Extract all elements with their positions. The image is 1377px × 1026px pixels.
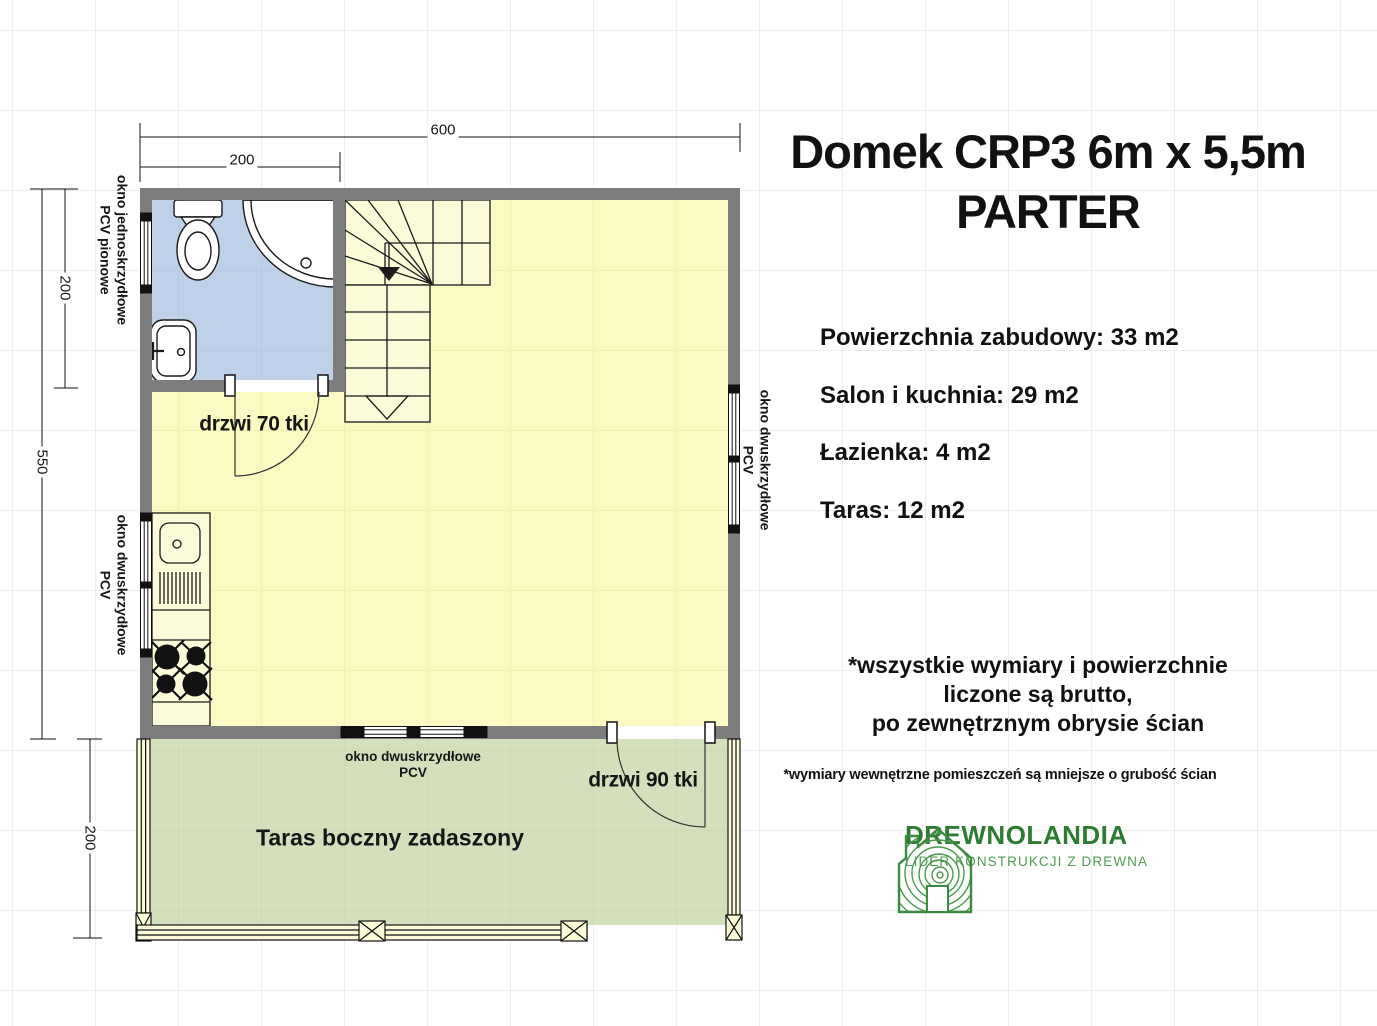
page-title: Domek CRP3 6m x 5,5m PARTER — [756, 122, 1340, 242]
dimension-height-bathroom: 200 — [58, 272, 73, 303]
window-left-kitchen-label: okno dwuskrzydłowe PCV — [97, 515, 130, 656]
stat-terrace: Taras: 12 m2 — [820, 497, 965, 525]
page-title-line1: Domek CRP3 6m x 5,5m — [756, 122, 1340, 182]
page: 600 200 550 200 200 okno jednoskrzydłowe… — [0, 0, 1377, 1026]
door-bathroom-label: drzwi 70 tki — [199, 413, 309, 438]
door-terrace-label: drzwi 90 tki — [588, 769, 698, 794]
window-right — [729, 385, 740, 533]
page-title-line2: PARTER — [756, 182, 1340, 242]
window-left-bathroom — [141, 213, 152, 293]
note-internal-dimensions: *wymiary wewnętrzne pomieszczeń są mniej… — [778, 767, 1222, 783]
drewnolandia-logo: DREWNOLANDIA LIDER KONSTRUKCJI Z DREWNA — [893, 820, 1148, 869]
drewnolandia-house-icon — [893, 820, 977, 914]
stat-living-kitchen: Salon i kuchnia: 29 m2 — [820, 382, 1079, 410]
window-left-bathroom-label: okno jednoskrzydłowe PCV pionowe — [97, 175, 130, 325]
window-bottom — [341, 727, 487, 738]
window-left-kitchen — [141, 513, 152, 657]
dimension-width-bathroom: 200 — [226, 153, 257, 168]
dimension-width-total: 600 — [427, 123, 458, 138]
window-right-label: okno dwuskrzydłowe PCV — [740, 390, 773, 531]
dimension-height-total: 550 — [35, 446, 50, 477]
terrace-label: Taras boczny zadaszony — [256, 824, 524, 851]
window-bottom-label: okno dwuskrzydłowe PCV — [345, 749, 481, 781]
stat-bathroom: Łazienka: 4 m2 — [820, 439, 991, 467]
dimension-height-terrace: 200 — [83, 822, 98, 853]
stat-area-total: Powierzchnia zabudowy: 33 m2 — [820, 324, 1179, 352]
toilet — [174, 200, 222, 280]
note-gross-dimensions: *wszystkie wymiary i powierzchnie liczon… — [795, 651, 1281, 738]
